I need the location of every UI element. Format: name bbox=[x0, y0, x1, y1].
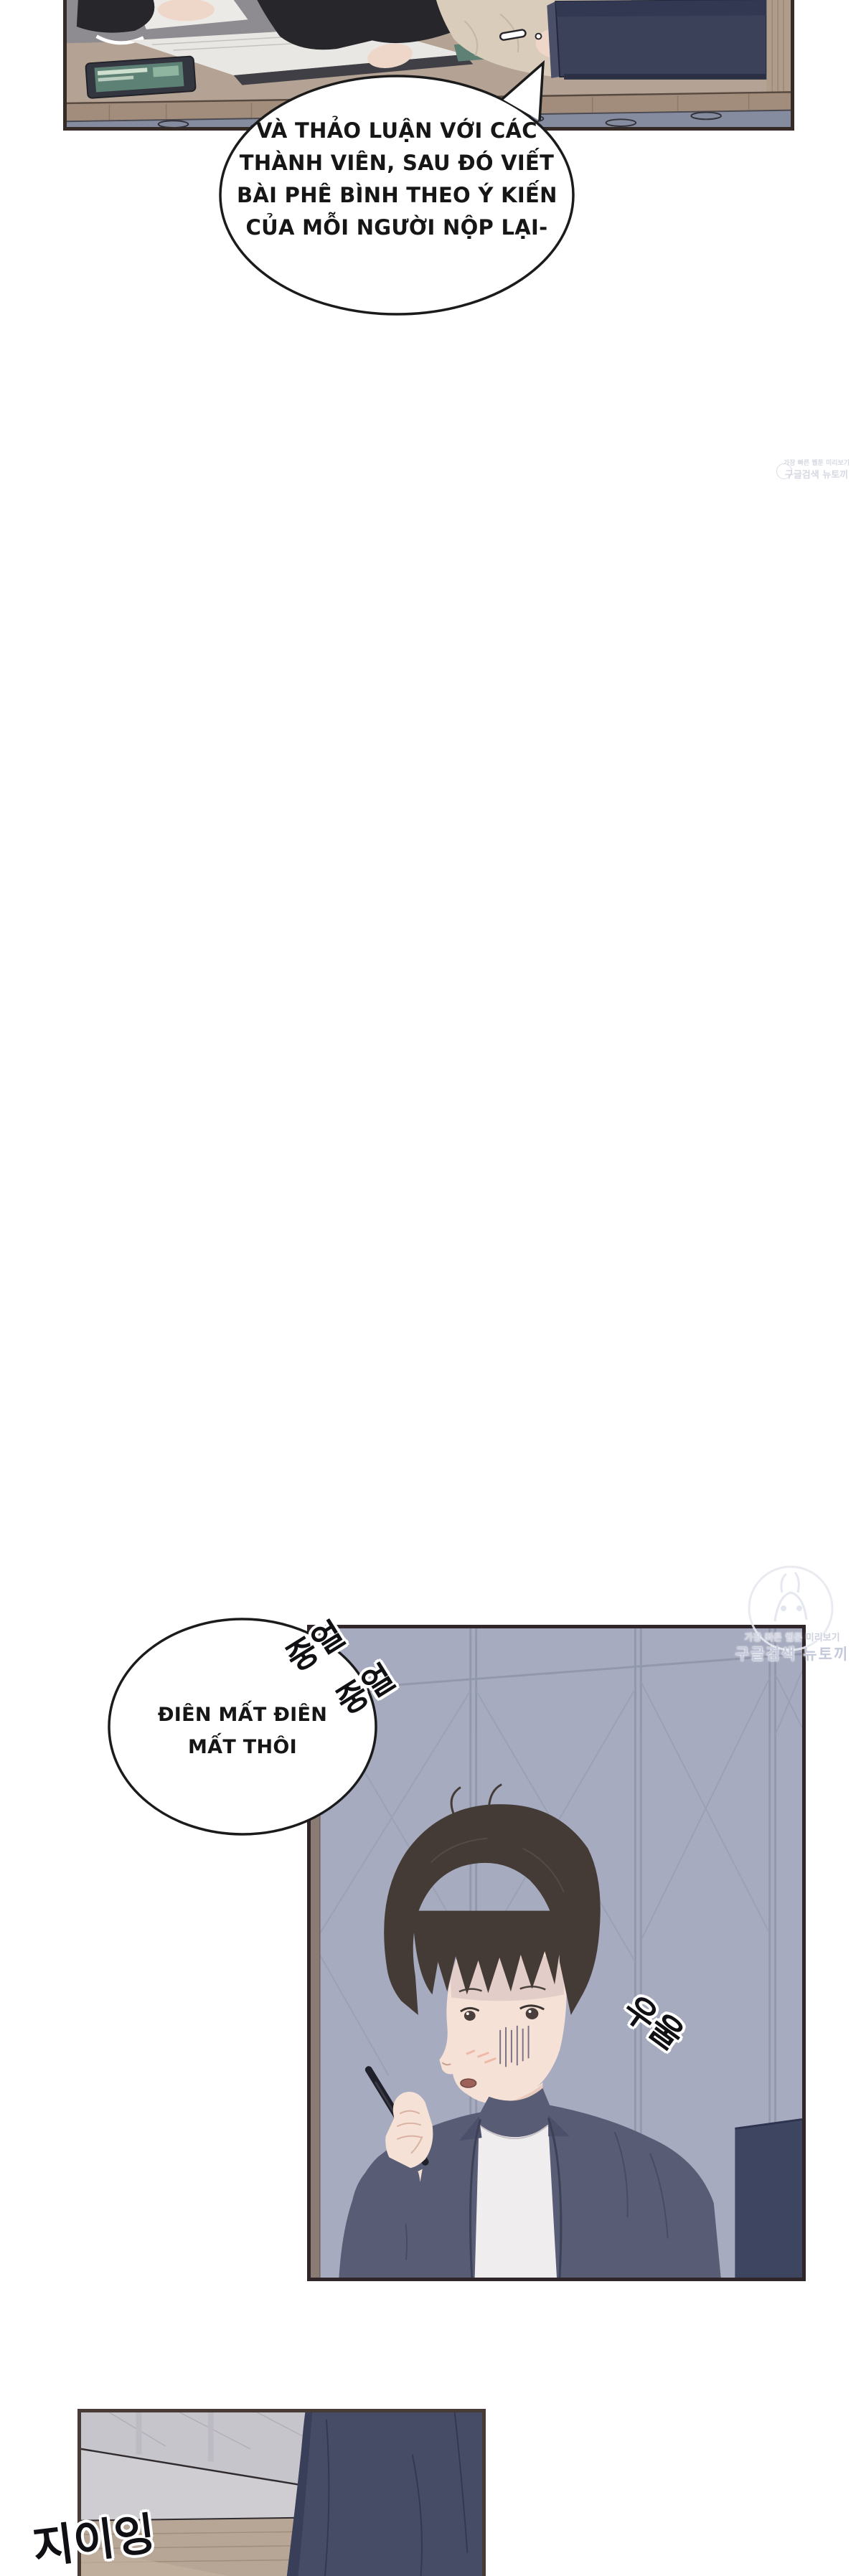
bubble2-line1: ĐIÊN MẤT ĐIÊN bbox=[121, 1699, 364, 1731]
watermark-brand-large: 구글검색 뉴토끼 bbox=[723, 1643, 861, 1664]
bubble2-line2: MẤT THÔI bbox=[121, 1731, 364, 1763]
bubble1-line4: CỦA MỖI NGƯỜI NỘP LẠI- bbox=[237, 212, 557, 244]
watermark-tagline: 가장 빠른 웹툰 미리보기 bbox=[772, 458, 861, 467]
side-table-wood bbox=[766, 0, 791, 98]
tee-shirt bbox=[475, 2125, 557, 2278]
bubble1-line1: VÀ THẢO LUẬN VỚI CÁC bbox=[237, 115, 557, 147]
bubble-2-dialogue: ĐIÊN MẤT ĐIÊN MẤT THÔI bbox=[121, 1699, 364, 1763]
laptop-hinge bbox=[564, 74, 771, 80]
student-scene-art bbox=[311, 1628, 802, 2278]
watermark-brand: 구글검색 뉴토끼 bbox=[772, 467, 861, 481]
bubble1-line2: THÀNH VIÊN, SAU ĐÓ VIẾT bbox=[237, 147, 557, 179]
sofa bbox=[735, 2119, 802, 2278]
standing-figure bbox=[287, 2412, 482, 2576]
watermark-tagline-large: 가장 빠른 웹툰 미리보기 bbox=[723, 1630, 861, 1643]
watermark-small: 가장 빠른 웹툰 미리보기 구글검색 뉴토끼 bbox=[772, 458, 861, 481]
webtoon-page: { "speech": { "bubble1": { "lines": [ "V… bbox=[0, 0, 861, 2576]
tablet-device bbox=[85, 56, 196, 98]
bubble1-line3: BÀI PHÊ BÌNH THEO Ý KIẾN bbox=[237, 179, 557, 212]
bubble-1-dialogue: VÀ THẢO LUẬN VỚI CÁC THÀNH VIÊN, SAU ĐÓ … bbox=[237, 115, 557, 244]
